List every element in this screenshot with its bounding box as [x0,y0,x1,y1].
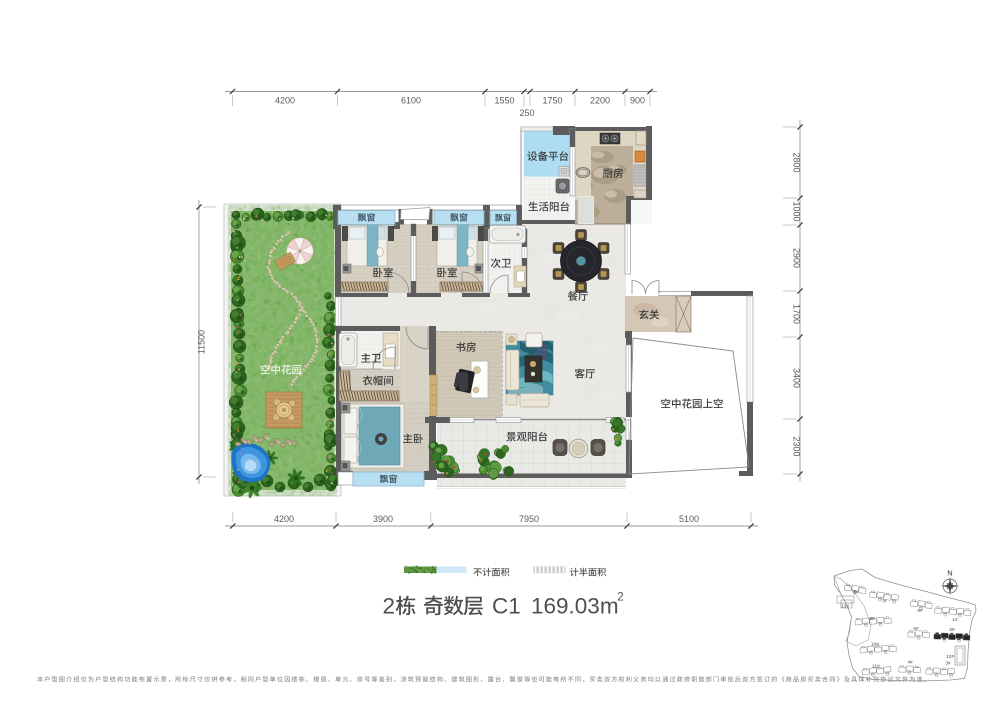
svg-text:6100: 6100 [401,96,421,106]
svg-text:7#: 7# [881,599,887,605]
svg-text:2200: 2200 [590,96,610,106]
svg-text:2: 2 [383,594,396,619]
svg-text:2800: 2800 [792,152,802,172]
svg-text:N: N [947,569,952,578]
svg-text:9#: 9# [869,616,875,622]
svg-text:10#: 10# [871,642,879,648]
svg-text:6#: 6# [917,608,923,614]
svg-text:4#: 4# [907,660,913,666]
svg-text:3400: 3400 [792,368,802,388]
svg-text:13#: 13# [841,604,849,610]
svg-text:2300: 2300 [792,436,802,456]
svg-text:2#: 2# [949,627,955,633]
svg-text:2: 2 [617,592,623,604]
svg-text:250: 250 [519,108,534,118]
svg-text:900: 900 [630,96,645,106]
svg-text:C1: C1 [492,594,521,619]
svg-text:11500: 11500 [197,330,207,354]
svg-text:8#: 8# [853,590,859,596]
svg-text:4200: 4200 [274,514,294,524]
svg-text:11#: 11# [872,664,880,670]
svg-text:7950: 7950 [519,514,539,524]
svg-text:2900: 2900 [792,248,802,268]
svg-text:169.03m: 169.03m [531,594,619,619]
svg-text:5100: 5100 [679,514,699,524]
svg-text:12#: 12# [946,654,954,660]
svg-text:5#: 5# [913,626,919,632]
svg-text:4200: 4200 [275,96,295,106]
svg-text:3900: 3900 [373,514,393,524]
svg-text:1750: 1750 [542,96,562,106]
svg-text:1700: 1700 [792,304,802,324]
svg-text:1550: 1550 [494,96,514,106]
svg-text:1#: 1# [952,617,958,623]
svg-text:1000: 1000 [792,201,802,221]
svg-text:3#: 3# [945,661,951,667]
